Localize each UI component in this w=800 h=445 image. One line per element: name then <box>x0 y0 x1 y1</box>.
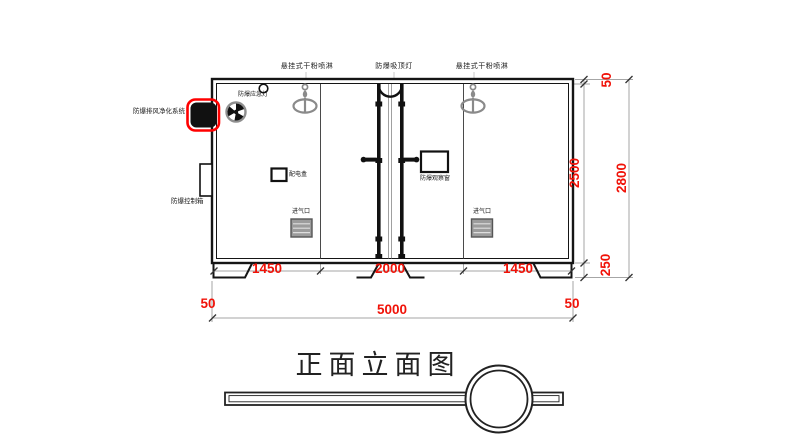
dim-50-bottom-left: 50 <box>188 297 228 311</box>
dim-1450-left: 1450 <box>242 262 292 276</box>
air-inlet-left-label: 进气口 <box>292 209 310 215</box>
sprinkler-left-label: 悬挂式干粉喷淋 <box>262 63 352 70</box>
dim-50-top-right: 50 <box>600 50 614 110</box>
control-box-symbol <box>200 164 212 196</box>
power-box-symbol <box>272 169 287 182</box>
air-inlet-vent-left <box>291 219 312 237</box>
power-box-label: 配电盒 <box>289 172 307 178</box>
emergency-light-label: 防爆应急灯 <box>238 92 268 98</box>
dim-2000: 2000 <box>365 262 415 276</box>
dim-2500: 2500 <box>568 143 582 203</box>
container-outline <box>212 79 573 263</box>
fan-icon <box>227 103 246 122</box>
air-inlet-vent-right <box>472 219 493 237</box>
drawing-title: 正面立面图 <box>268 352 488 379</box>
dim-250: 250 <box>599 235 613 295</box>
observation-window-label: 防爆观察窗 <box>420 176 450 182</box>
observation-window-symbol <box>421 152 448 173</box>
dim-2800: 2800 <box>615 148 629 208</box>
dim-1450-right: 1450 <box>493 262 543 276</box>
dim-5000: 5000 <box>367 303 417 317</box>
purification-system-label: 防爆排风净化系统 <box>133 109 185 116</box>
control-box-label: 防爆控制箱 <box>171 199 204 206</box>
dim-50-bottom-right: 50 <box>552 297 592 311</box>
unit-body <box>191 103 217 128</box>
sprinkler-right-label: 悬挂式干粉喷淋 <box>437 63 527 70</box>
elevation-drawing-canvas: 悬挂式干粉喷淋 防爆吸顶灯 悬挂式干粉喷淋 防爆应急灯 防爆排风净化系统 防爆控… <box>0 0 800 445</box>
title-circle-inner <box>471 371 528 428</box>
air-inlet-right-label: 进气口 <box>473 209 491 215</box>
ceiling-lamp-label: 防爆吸顶灯 <box>359 63 429 70</box>
